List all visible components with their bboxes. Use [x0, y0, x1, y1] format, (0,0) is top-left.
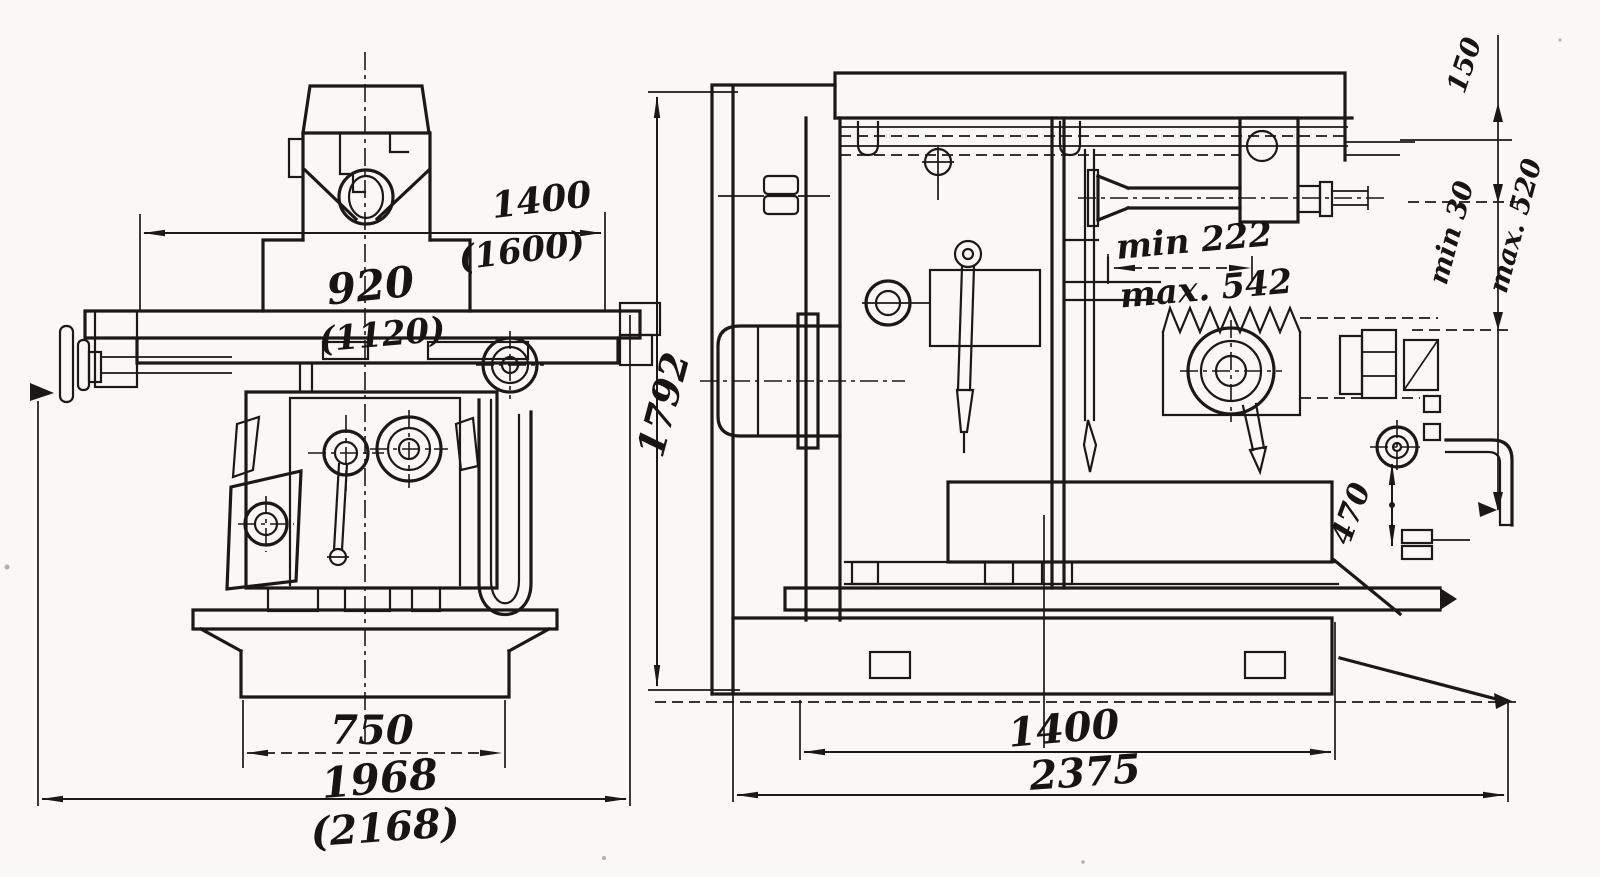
front-view-knee: [227, 392, 531, 615]
scan-noise: [5, 39, 1562, 864]
front-view-base: [193, 610, 557, 697]
dim-overall-width-label: 1968: [319, 749, 440, 808]
side-view-base: [655, 562, 1520, 702]
dim-top-offset-label: 150: [1441, 34, 1488, 97]
dim-overall-width-alt-label: (2168): [309, 799, 461, 856]
drawing-sheet: 1400 (1600) 920 (1120) 750 1968 (2168): [0, 0, 1600, 877]
front-view-dimensions: 1400 (1600) 920 (1120) 750 1968 (2168): [30, 173, 630, 856]
left-extent-flag: [30, 383, 54, 401]
dim-overall-length-label: 2375: [1027, 745, 1142, 800]
dim-gap-min-label: min 30: [1423, 178, 1480, 288]
dim-spindle-min-label: min 222: [1114, 214, 1273, 267]
side-view: 1792 min 222 max. 542 150 min 30 max. 52…: [628, 34, 1549, 802]
dim-table-width-label: 920: [324, 257, 416, 315]
dim-gap-max-label: max. 520: [1483, 155, 1549, 296]
dim-overarm-width-alt-label: (1600): [456, 224, 587, 279]
side-view-column: [700, 73, 1415, 694]
front-view: 1400 (1600) 920 (1120) 750 1968 (2168): [30, 52, 660, 856]
dim-base-width-label: 750: [330, 707, 414, 754]
engineering-drawing: 1400 (1600) 920 (1120) 750 1968 (2168): [0, 0, 1600, 877]
side-view-dimensions: 1792 min 222 max. 542 150 min 30 max. 52…: [628, 34, 1549, 802]
dim-spindle-max-label: max. 542: [1118, 262, 1294, 317]
dim-overarm-width-label: 1400: [489, 173, 594, 227]
